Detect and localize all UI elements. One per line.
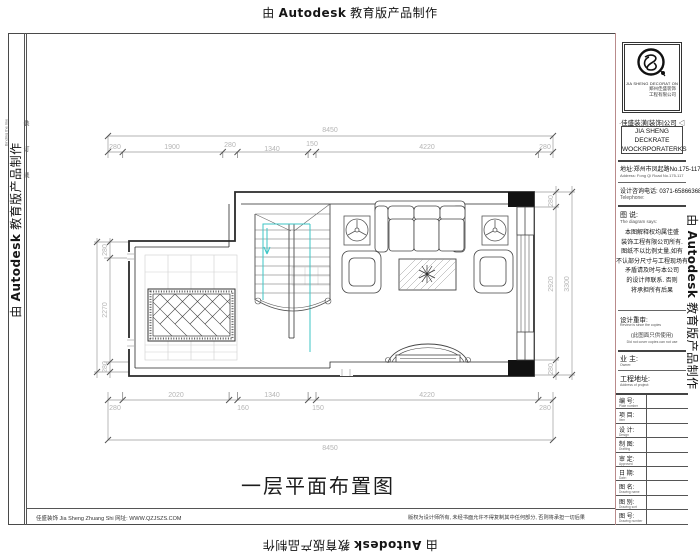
dim-label: 8450	[322, 127, 338, 134]
row-label-en: Drawing sort	[619, 505, 637, 509]
row-label-en: Drafting	[619, 447, 630, 451]
table-row: 设 计:Design	[616, 424, 688, 438]
row-label-en: Approved	[619, 462, 633, 466]
row-divider	[646, 496, 647, 509]
table-row: 图 名:Drawing name	[616, 481, 688, 495]
row-divider	[646, 424, 647, 437]
row-divider	[646, 510, 647, 523]
row-label-en: Drawing name	[619, 490, 640, 494]
company-name-en-line1: JIA SHENG DECKRATE	[622, 127, 682, 145]
divider	[618, 370, 686, 371]
note-paragraph: 本图解释权均属佳盛 装饰工程有限公司所有. 图纸不以比例丈量,如有 不认部分尺寸…	[616, 229, 688, 296]
note-line: 本图解释权均属佳盛	[616, 229, 688, 239]
end-table-left	[344, 216, 370, 245]
review-note-en: Did not cover copies can not use	[616, 340, 688, 344]
column-block-bottom-right	[508, 360, 534, 376]
divider	[618, 350, 686, 352]
logo-caption-cn2: 工程有限公司	[625, 92, 679, 98]
dim-label: 2270	[102, 302, 109, 318]
staircase	[255, 204, 331, 352]
rug	[130, 274, 270, 344]
note-line: 将承担所有后果	[616, 287, 688, 297]
row-label-en: Plate number	[619, 404, 638, 408]
dim-label: 280	[102, 361, 109, 373]
note-line: 装饰工程有限公司所有.	[616, 239, 688, 249]
table-row: 日 期:Date:	[616, 467, 688, 481]
table-row: 制 图:Drafting	[616, 438, 688, 452]
dim-label: 150	[306, 141, 318, 148]
footer-company-text: 佳盛装饰 Jia Sheng Zhuang Shi 网址: WWW.QZJSZS…	[36, 514, 181, 522]
row-divider	[646, 438, 647, 451]
table-row: 图 号:Drawing number	[616, 510, 688, 524]
armchair-left	[342, 251, 381, 293]
footer-divider	[26, 508, 615, 509]
dim-label: 2920	[548, 276, 555, 292]
column-block-top-right	[508, 192, 534, 207]
dim-label: 150	[312, 405, 324, 412]
row-label-en: Item	[619, 418, 625, 422]
dim-label: 280	[109, 405, 121, 412]
row-label-en: Drawing number	[619, 519, 642, 523]
dim-label: 4220	[419, 144, 435, 151]
phone-en: Telephone:	[616, 195, 688, 201]
site-en: Address of project:	[616, 383, 688, 387]
stair-landing	[255, 298, 331, 311]
dim-label: 1900	[164, 144, 180, 151]
table-row: 编 号:Plate number	[616, 395, 688, 409]
table-row: 图 别:Drawing sort	[616, 496, 688, 510]
footer-copyright-text: 版权为设计师所有, 未经书面允许不得复制其中任何部分, 否则将承担一切后果	[408, 514, 585, 521]
divider	[618, 160, 686, 162]
dim-label: 280	[539, 144, 551, 151]
review-note: (此图面只供使用)	[616, 331, 688, 339]
dim-label: 4220	[419, 392, 435, 399]
table-row: 项 目:Item	[616, 409, 688, 423]
row-label-en: Design	[619, 433, 629, 437]
stair-handrail	[263, 224, 310, 352]
row-divider	[646, 395, 647, 408]
row-label-en: Date:	[619, 476, 627, 480]
dim-label: 160	[237, 405, 249, 412]
address-en: Address: Fong Qi Road No.175-117	[616, 173, 688, 178]
divider	[618, 182, 686, 183]
note-line: 矛盾请及时与本公司	[616, 267, 688, 277]
row-divider	[646, 453, 647, 466]
walls	[129, 192, 534, 376]
company-name-en-line2: WOCKRPORATERKS	[622, 145, 682, 154]
end-table-right	[482, 216, 508, 245]
coffee-table	[385, 250, 474, 290]
cad-sheet-page: { "watermark": { "prefix": "由", "brand":…	[0, 0, 700, 560]
dim-label: 2020	[168, 392, 184, 399]
window	[517, 207, 534, 360]
note-title-en: The diagram says:	[616, 219, 688, 224]
tv-console	[386, 344, 471, 363]
divider	[618, 310, 686, 311]
title-block: JIA SHENG DECORAT ON 郑州佳盛装饰 工程有限公司 ·佳盛装潢…	[615, 33, 687, 525]
dim-label: 1340	[264, 392, 280, 399]
dim-label: 3300	[564, 276, 571, 292]
company-logo-icon	[633, 47, 671, 81]
row-divider	[646, 467, 647, 480]
dim-label: 280	[102, 244, 109, 256]
note-line: 不认部分尺寸与工程现场有	[616, 258, 688, 268]
owner-en: Owner:	[616, 363, 688, 367]
row-divider	[646, 481, 647, 494]
address-cn: 地址:郑州市凤起路No.175-117	[616, 164, 688, 173]
dim-label: 280	[539, 405, 551, 412]
review-en: Review is since the copies	[616, 323, 688, 327]
sofa	[375, 201, 465, 252]
dim-label: 1340	[264, 146, 280, 153]
table-row: 审 定:Approved	[616, 453, 688, 467]
logo-box: JIA SHENG DECORAT ON 郑州佳盛装饰 工程有限公司	[622, 42, 682, 113]
dim-label: 280	[548, 195, 555, 207]
dim-label: 280	[224, 142, 236, 149]
company-name-box: JIA SHENG DECKRATE WOCKRPORATERKS	[621, 126, 683, 154]
divider	[618, 205, 686, 207]
dim-label: 8450	[322, 445, 338, 452]
row-divider	[646, 409, 647, 422]
plan-title: 一层平面布置图	[168, 470, 468, 499]
title-block-table: 编 号:Plate number 项 目:Item 设 计:Design 制 图…	[616, 393, 688, 523]
dim-label: 280	[109, 144, 121, 151]
armchair-right	[474, 250, 513, 293]
note-line: 图纸不以比例丈量,如有	[616, 248, 688, 258]
phone-cn: 设计咨询电话: 0371-65866368	[616, 186, 688, 195]
note-line: 的设计师联系. 否则	[616, 277, 688, 287]
dim-label: 280	[548, 363, 555, 375]
